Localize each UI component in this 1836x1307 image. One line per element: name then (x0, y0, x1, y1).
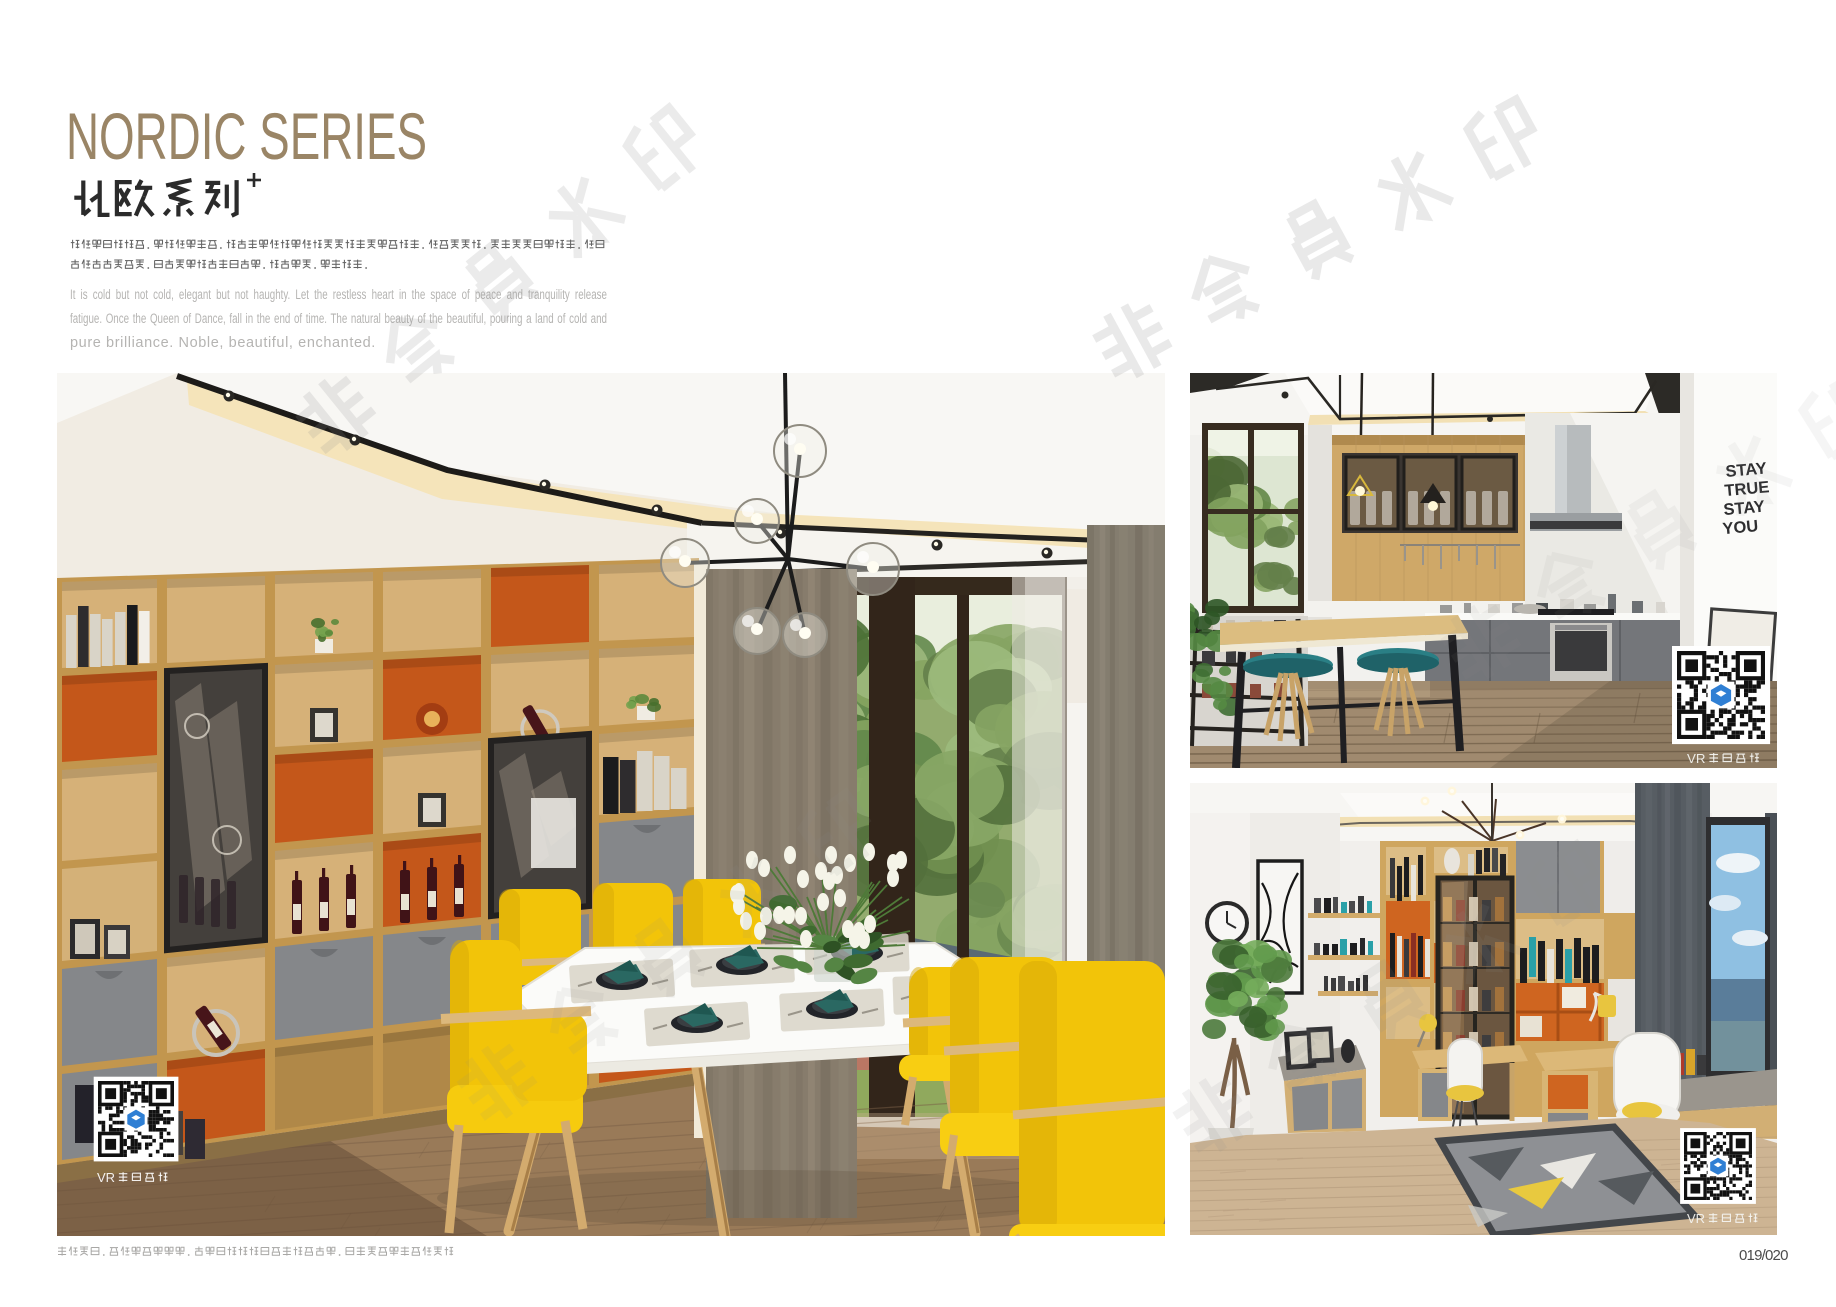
svg-text:VR: VR (1687, 1211, 1705, 1226)
svg-text:YOU: YOU (1722, 517, 1759, 538)
svg-text:NORDIC SERIES: NORDIC SERIES (66, 99, 427, 173)
svg-text:VR: VR (1687, 751, 1705, 766)
svg-text:STAY: STAY (1725, 459, 1768, 481)
svg-text:VR: VR (97, 1170, 115, 1185)
svg-text:019/020: 019/020 (1739, 1247, 1788, 1264)
svg-text:STAY: STAY (1723, 498, 1766, 520)
